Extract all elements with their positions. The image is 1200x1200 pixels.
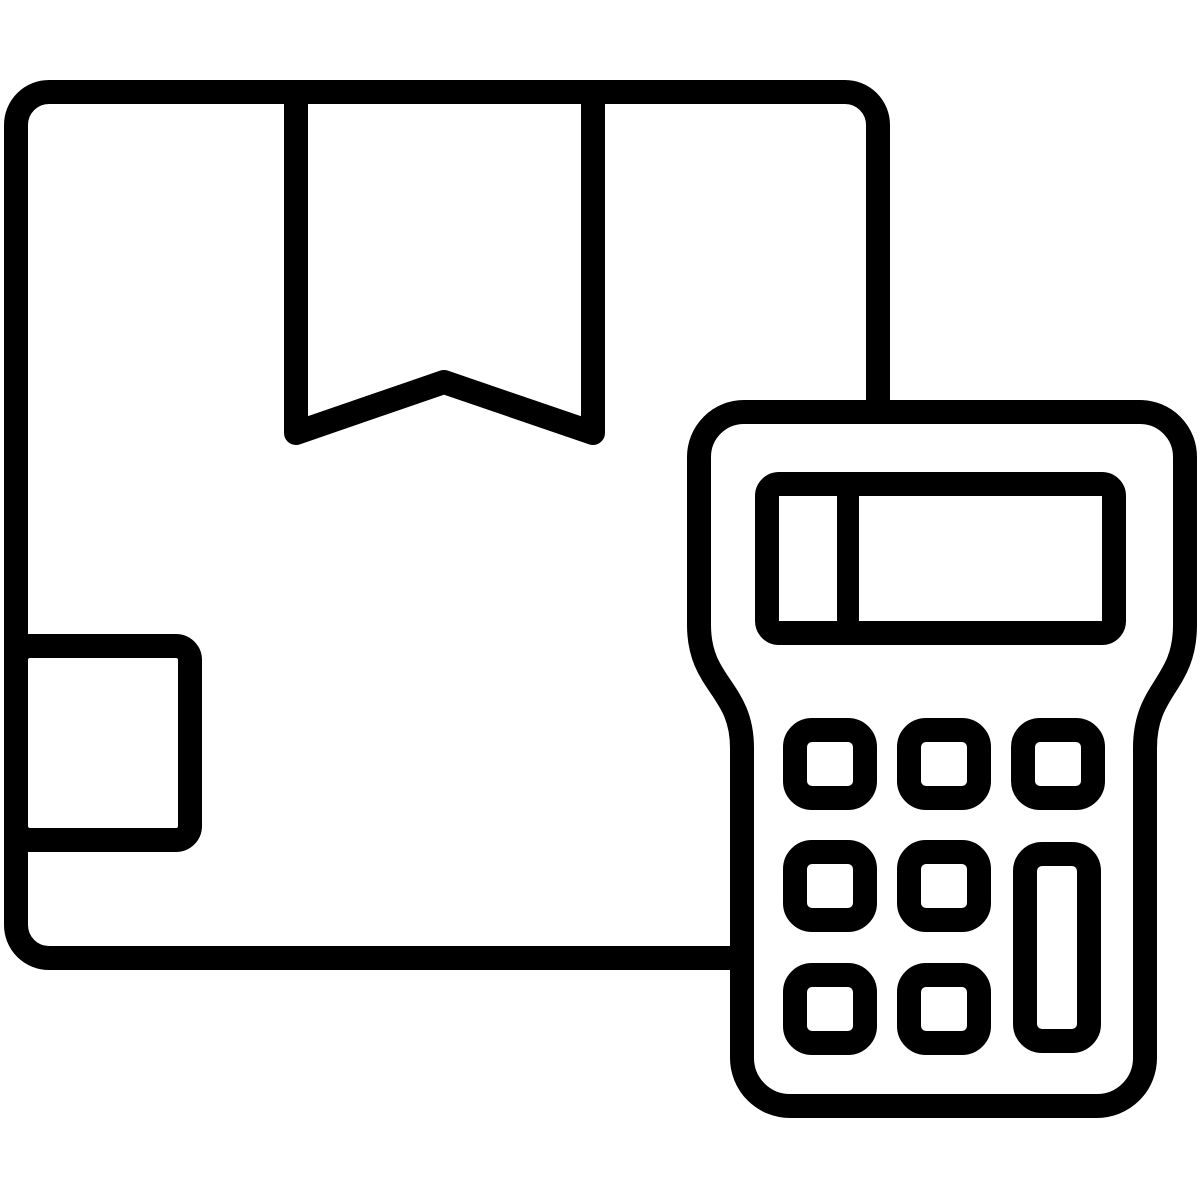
- icon-canvas: [0, 0, 1200, 1200]
- calculator-icon: [699, 412, 1185, 1106]
- package-calculator-illustration: [0, 0, 1200, 1200]
